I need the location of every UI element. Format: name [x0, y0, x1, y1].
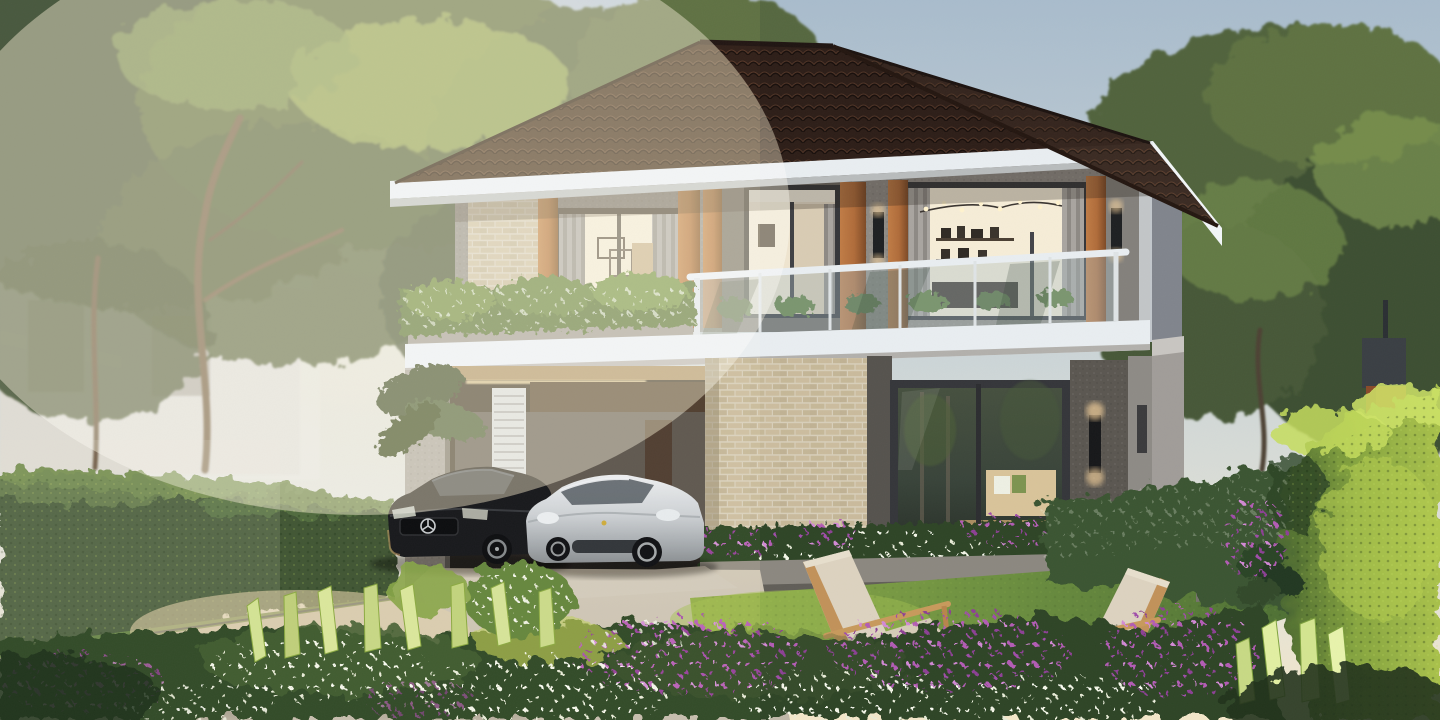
render-canvas [0, 0, 1440, 720]
light-overlays [0, 0, 1440, 720]
house-render [0, 0, 1440, 720]
